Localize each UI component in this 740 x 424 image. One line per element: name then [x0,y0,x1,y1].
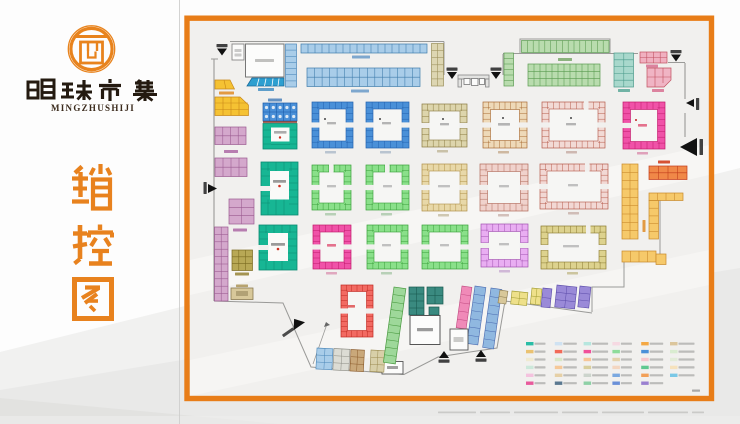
svg-text:MINGZHUSHIJI: MINGZHUSHIJI [51,103,135,113]
